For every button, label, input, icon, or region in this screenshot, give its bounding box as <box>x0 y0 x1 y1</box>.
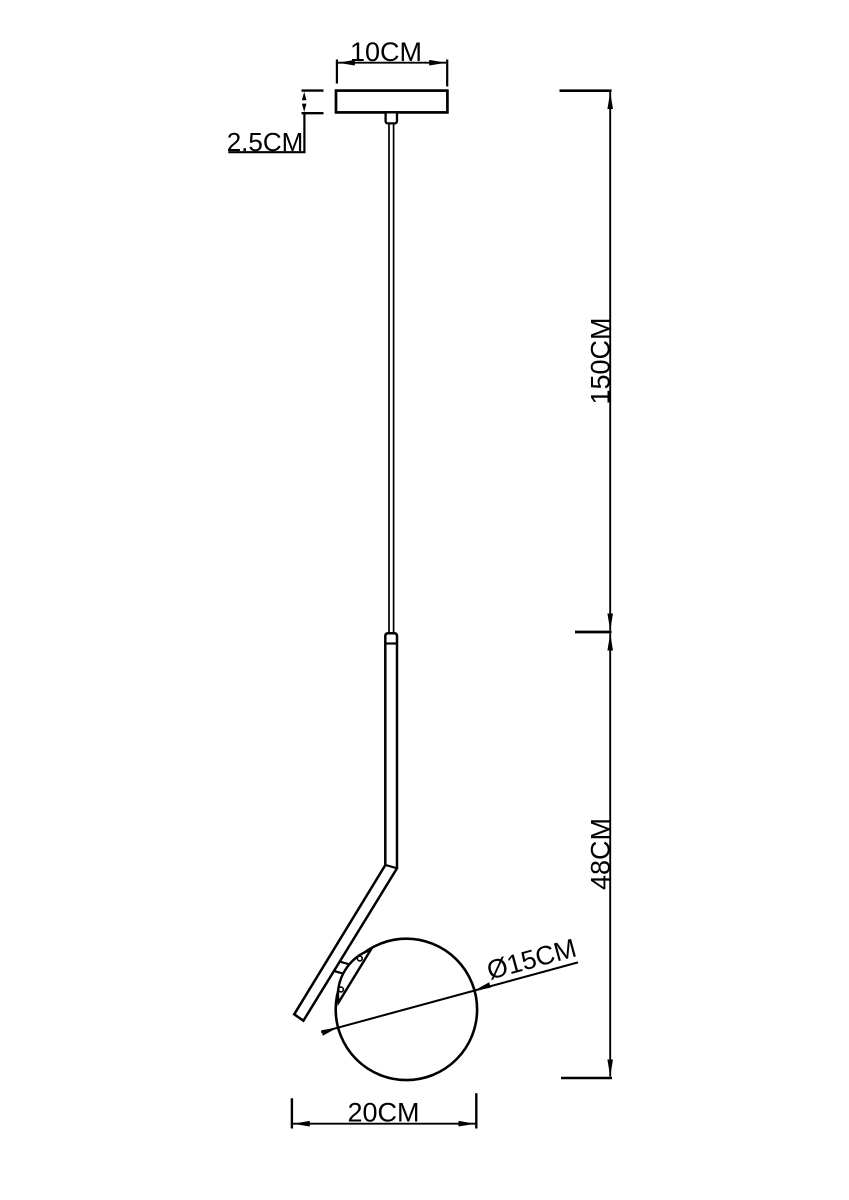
svg-text:48CM: 48CM <box>586 818 616 890</box>
svg-text:20CM: 20CM <box>347 1098 419 1128</box>
svg-text:2.5CM: 2.5CM <box>227 127 304 157</box>
svg-text:150CM: 150CM <box>586 317 616 404</box>
